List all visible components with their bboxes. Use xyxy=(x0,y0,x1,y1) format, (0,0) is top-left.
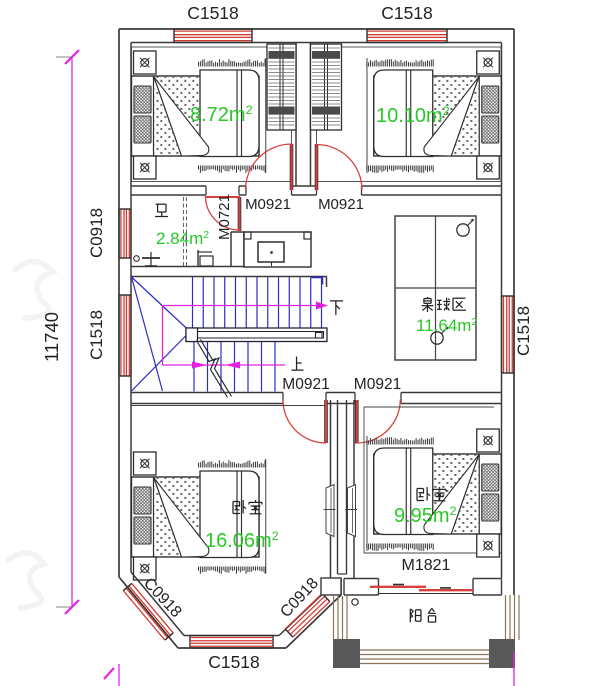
svg-text:11740: 11740 xyxy=(41,312,62,362)
svg-text:16.06m2: 16.06m2 xyxy=(205,529,279,552)
svg-text:11.64m2: 11.64m2 xyxy=(416,316,477,335)
svg-text:M0721: M0721 xyxy=(216,194,233,240)
svg-text:C1518: C1518 xyxy=(208,652,260,672)
svg-text:M0921: M0921 xyxy=(245,196,291,213)
svg-text:M1821: M1821 xyxy=(402,557,451,574)
svg-text:2.84m2: 2.84m2 xyxy=(156,229,209,248)
svg-text:M0921: M0921 xyxy=(354,376,401,393)
svg-text:8.72m2: 8.72m2 xyxy=(190,103,253,126)
svg-text:C1518: C1518 xyxy=(381,3,433,23)
svg-text:C1518: C1518 xyxy=(514,306,533,356)
svg-text:M0921: M0921 xyxy=(318,196,364,213)
svg-text:M0921: M0921 xyxy=(282,376,329,393)
svg-text:C1518: C1518 xyxy=(87,310,106,360)
svg-text:C0918: C0918 xyxy=(87,208,106,258)
svg-text:C1518: C1518 xyxy=(187,3,239,23)
svg-text:10.10m2: 10.10m2 xyxy=(376,104,450,127)
svg-text:9.95m2: 9.95m2 xyxy=(394,504,457,527)
